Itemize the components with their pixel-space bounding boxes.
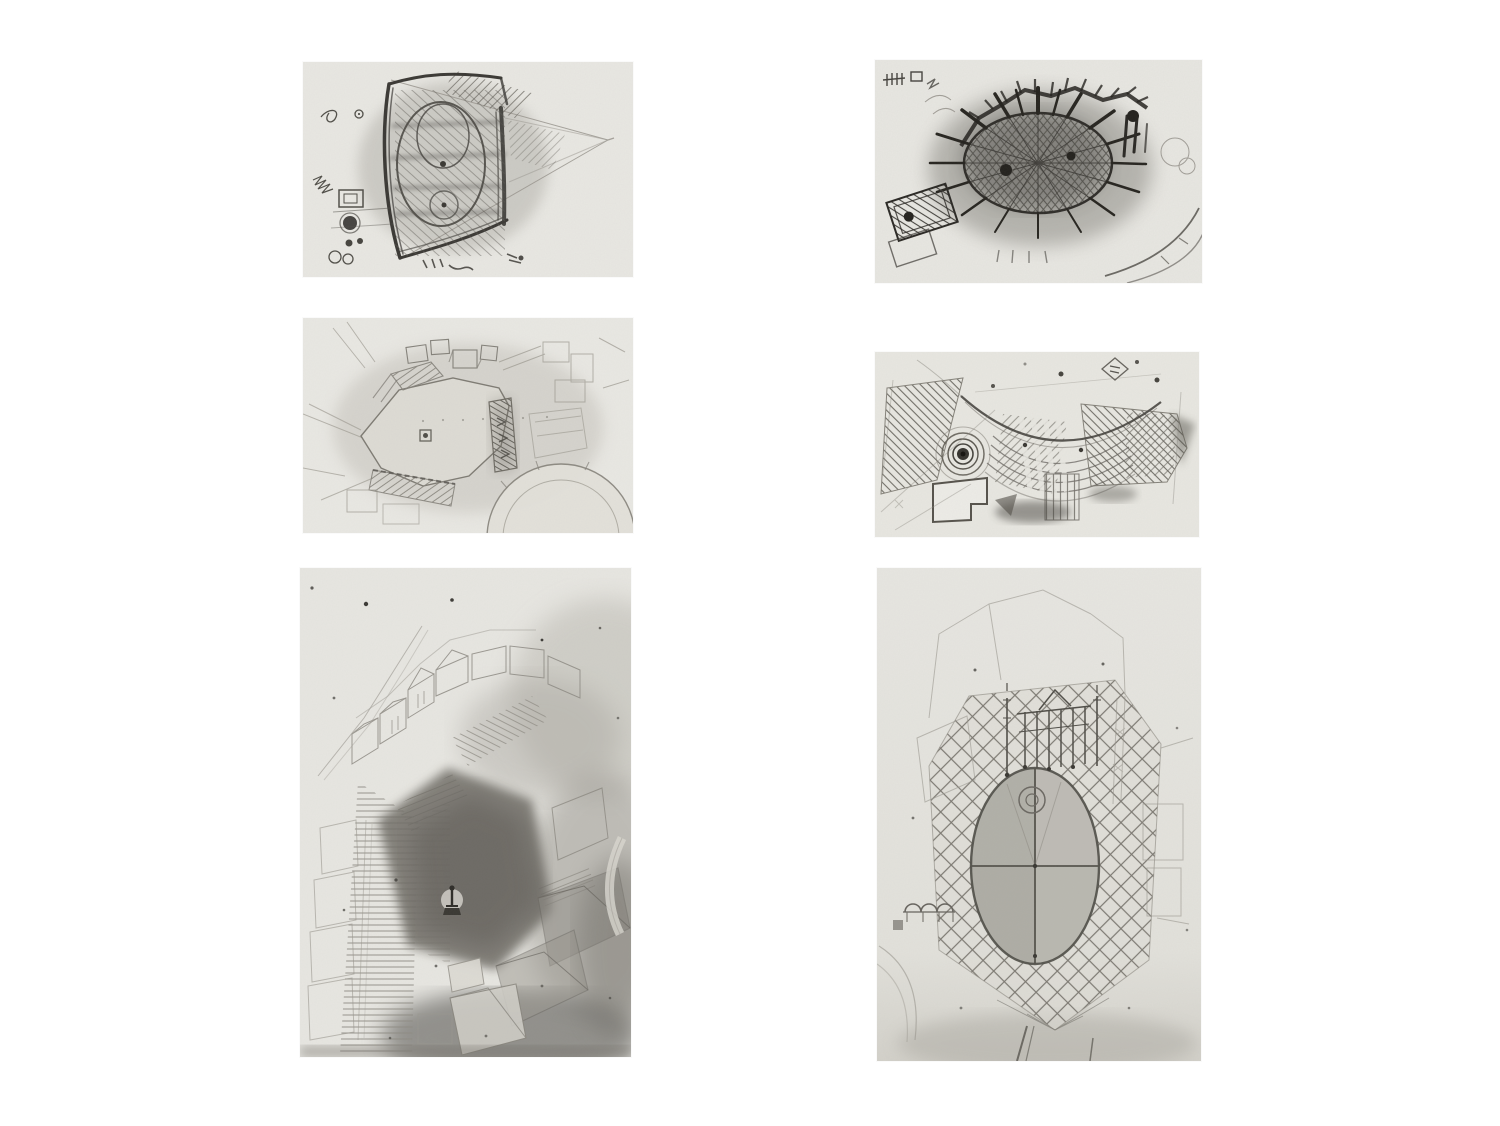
sketch-arc-paving-study: [875, 352, 1199, 537]
book-plate-page: { "page": { "kind": "scanned book plate"…: [0, 0, 1500, 1126]
plate-grid: [0, 0, 1500, 1126]
sketch-oval-piazza-radial: [875, 60, 1202, 283]
sketch-drawing: [875, 60, 1202, 283]
sketch-drawing: [303, 62, 633, 277]
sketch-drawing: [300, 568, 631, 1057]
sketch-drawing: [875, 352, 1199, 537]
sketch-polygonal-square-plan: [303, 318, 633, 533]
sketch-aerial-square-perspective: [300, 568, 631, 1057]
sketch-trapezoid-piazza: [303, 62, 633, 277]
sketch-drawing: [877, 568, 1201, 1061]
sketch-drawing: [303, 318, 633, 533]
sketch-oval-lattice-piazza: [877, 568, 1201, 1061]
